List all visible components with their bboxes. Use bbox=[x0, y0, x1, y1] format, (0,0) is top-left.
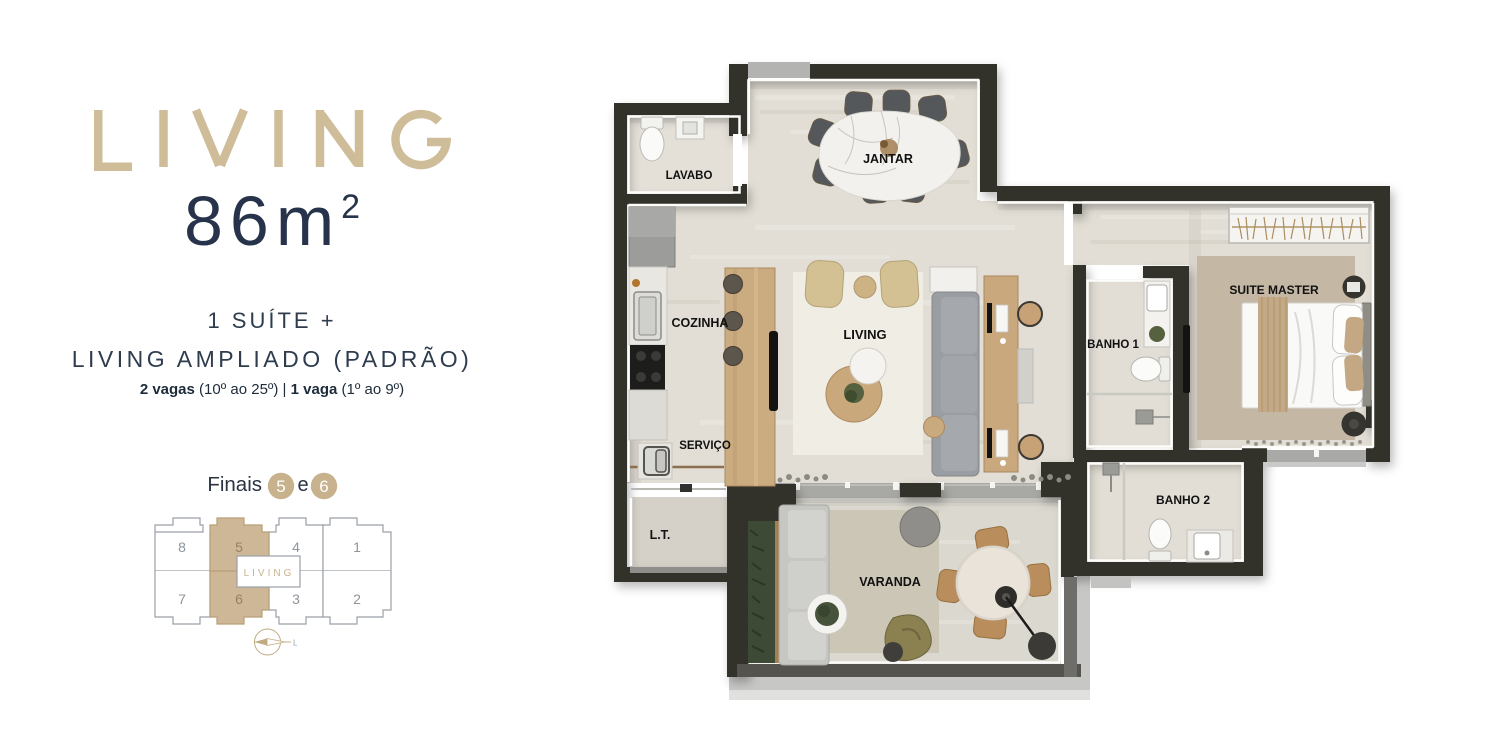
svg-text:L.T.: L.T. bbox=[650, 528, 671, 542]
svg-text:SUITE MASTER: SUITE MASTER bbox=[1229, 283, 1319, 297]
svg-text:JANTAR: JANTAR bbox=[863, 152, 913, 166]
svg-text:SERVIÇO: SERVIÇO bbox=[679, 440, 731, 452]
svg-text:LAVABO: LAVABO bbox=[666, 170, 713, 182]
svg-text:BANHO 1: BANHO 1 bbox=[1087, 339, 1139, 351]
svg-text:VARANDA: VARANDA bbox=[859, 575, 921, 589]
svg-text:LIVING: LIVING bbox=[843, 327, 886, 342]
svg-text:COZINHA: COZINHA bbox=[672, 316, 729, 330]
svg-text:BANHO 2: BANHO 2 bbox=[1156, 493, 1210, 507]
